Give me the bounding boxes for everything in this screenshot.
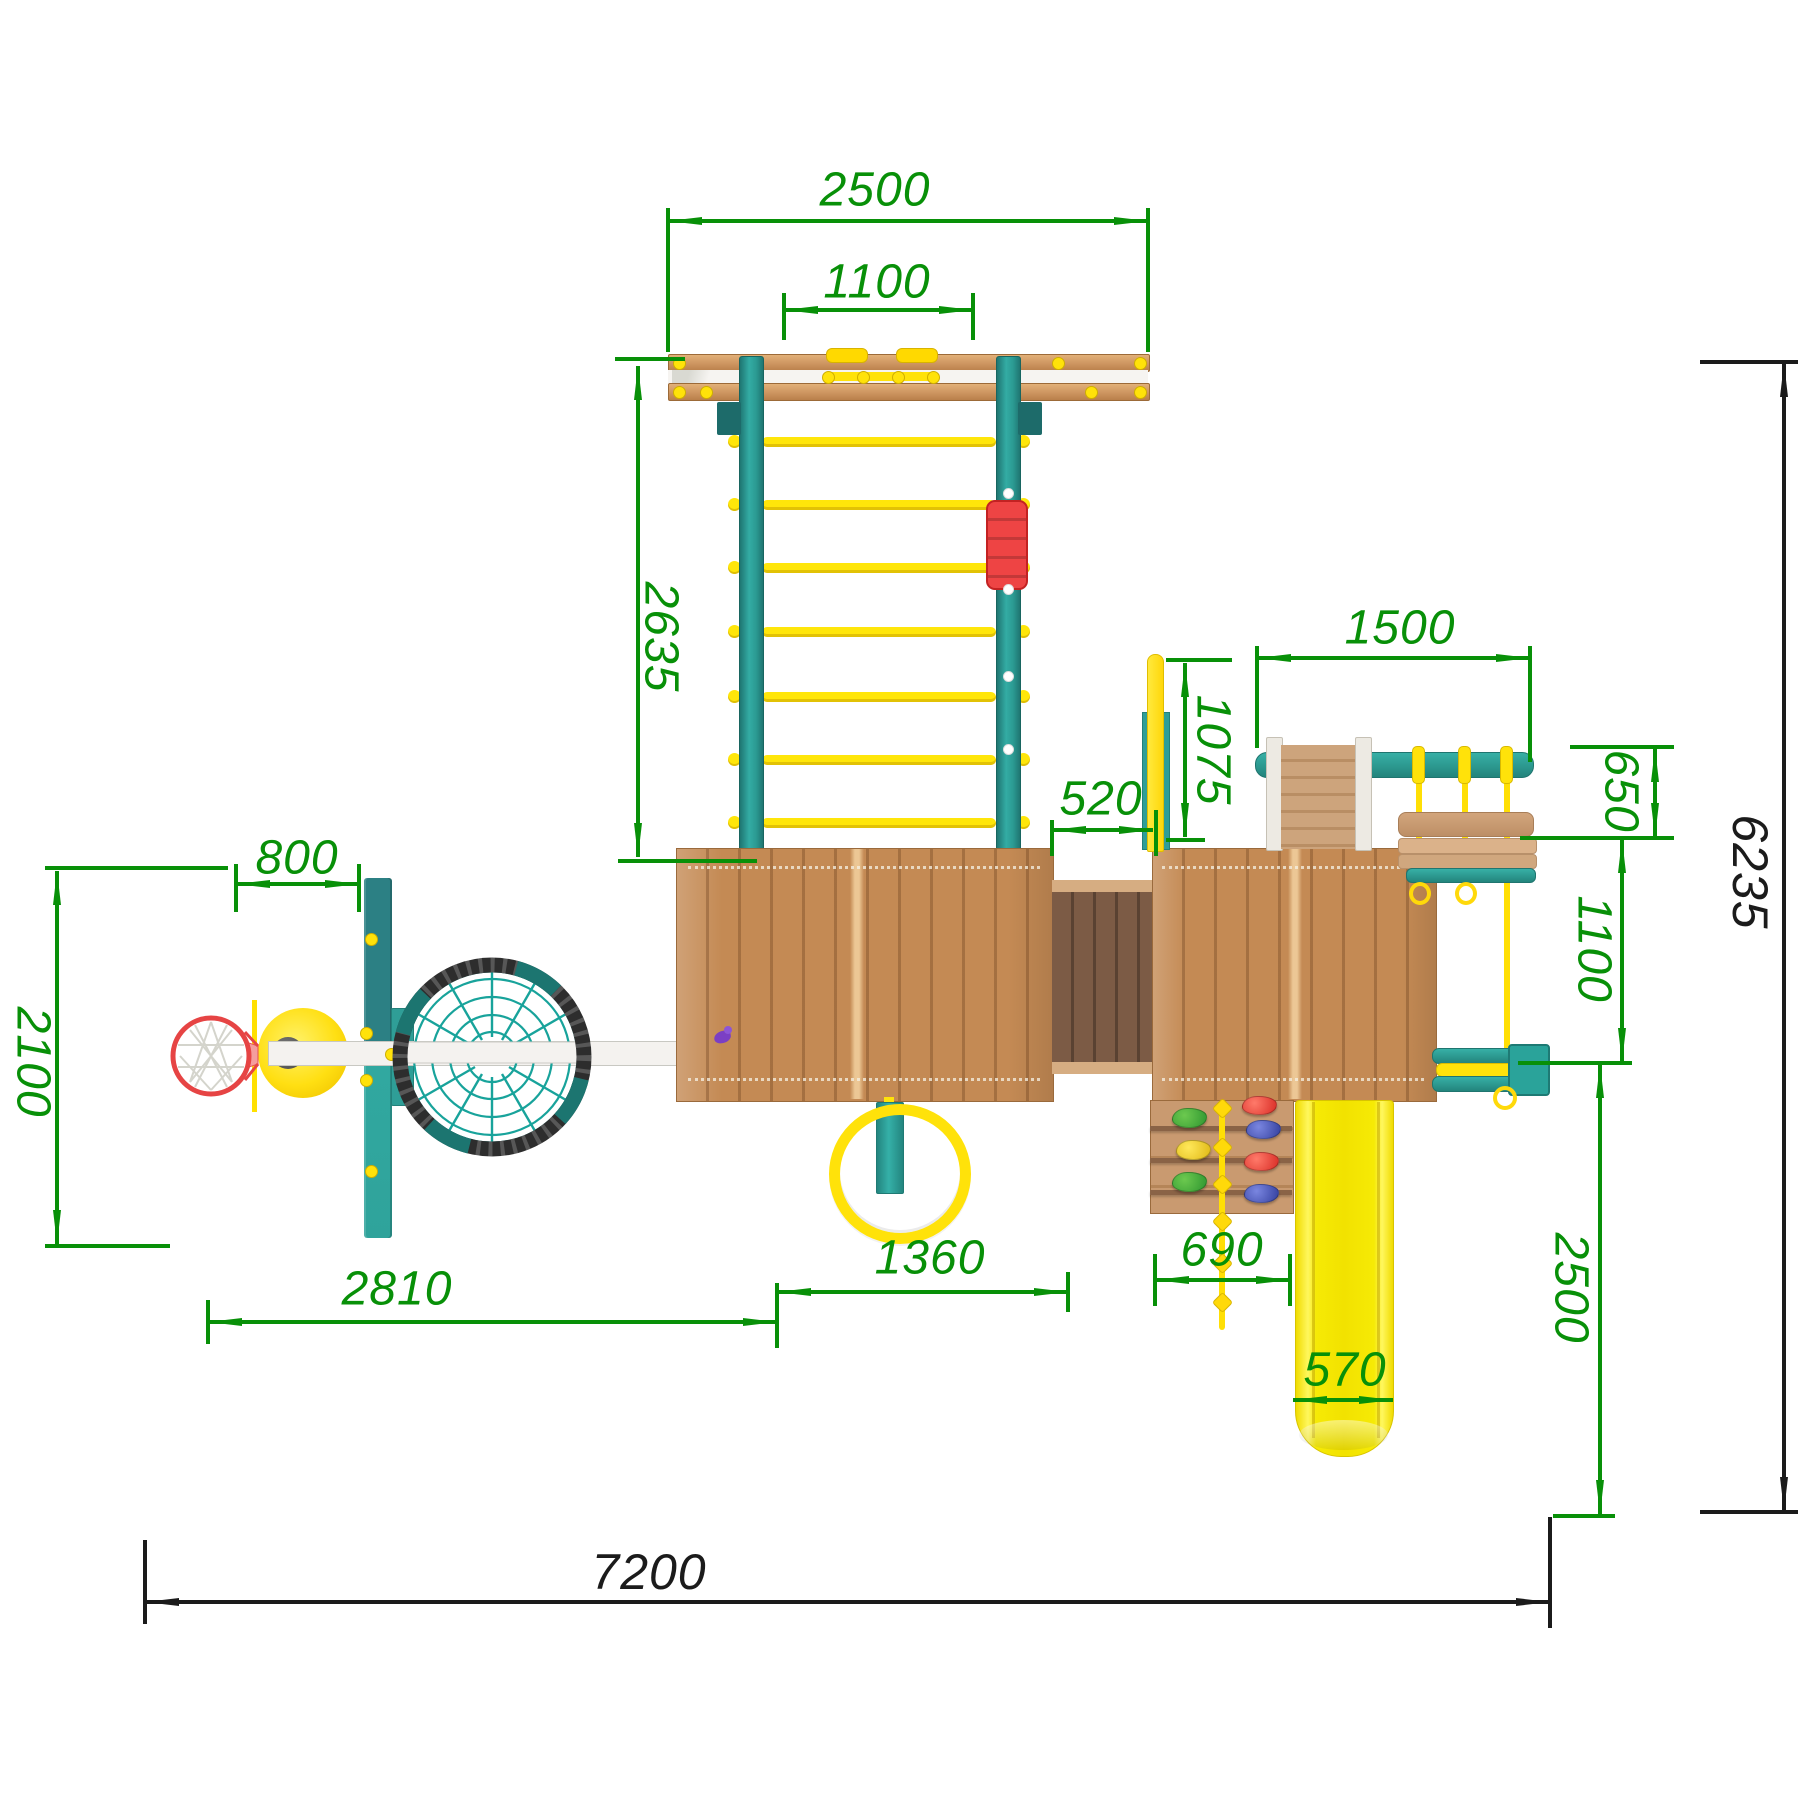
dim-swing-beam-1500 (1257, 646, 1530, 762)
dim-overall-6235 (1700, 362, 1798, 1512)
dim-label-overall-length: 7200 (591, 1543, 706, 1601)
dim-label-rung-span: 1100 (823, 255, 930, 310)
dim-label-pole-offset: 1075 (1186, 695, 1241, 806)
dim-label-top-beam: 2500 (820, 163, 931, 218)
dim-label-slide-width: 570 (1303, 1343, 1386, 1398)
nest-swing (400, 965, 584, 1149)
dim-overall-7200 (145, 1517, 1550, 1628)
dim-label-roof-gap: 520 (1059, 772, 1142, 827)
dim-label-ladder: 2635 (634, 582, 689, 693)
dim-label-overall-depth: 6235 (1721, 814, 1779, 929)
dim-label-basketball-zone: 2100 (6, 1007, 61, 1118)
drawing-canvas: 2500 1100 2635 1500 1075 520 650 1100 25… (0, 0, 1800, 1800)
dim-label-slide-runout: 2500 (1544, 1233, 1599, 1344)
dim-label-ring-zone: 1360 (875, 1231, 986, 1286)
dim-left-zone-2810 (208, 1283, 777, 1348)
basketball-hoop (173, 1018, 258, 1094)
dim-label-wall: 690 (1180, 1223, 1263, 1278)
dim-label-swing-clearance: 1100 (1567, 895, 1622, 1002)
dim-label-bench: 650 (1594, 749, 1649, 832)
dim-label-swing-beam: 1500 (1345, 601, 1456, 656)
beam-over-nest (406, 1042, 578, 1063)
dim-label-backboard: 800 (255, 831, 338, 886)
dim-label-left-zone: 2810 (342, 1262, 453, 1317)
